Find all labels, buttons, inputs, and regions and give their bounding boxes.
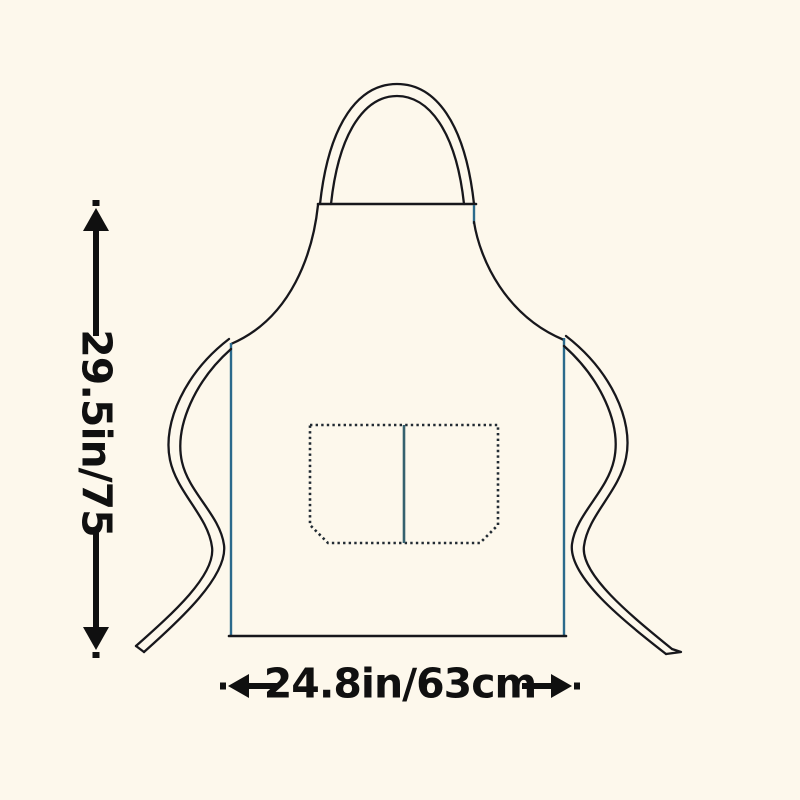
left-tie-inner-edge	[144, 349, 231, 652]
arrow-right-tip-nub	[574, 683, 580, 690]
right-tie-tip	[666, 649, 681, 654]
neck-strap-inner	[331, 96, 464, 204]
arrow-left-tip-nub	[220, 683, 226, 690]
arrow-down-tip-nub	[93, 652, 100, 658]
left-tie-outer-edge	[136, 339, 229, 646]
right-waist-tie	[564, 336, 681, 654]
apron-size-diagram: 29.5in/75 24.8in/63cm	[0, 0, 800, 800]
arrow-left-icon	[228, 674, 249, 698]
arrow-down-icon	[83, 627, 109, 650]
arrow-right-icon	[551, 674, 572, 698]
bib-right-curve	[474, 222, 564, 340]
arrow-up-icon	[83, 208, 109, 231]
vertical-dimension-label: 29.5in/75	[76, 329, 117, 536]
left-waist-tie	[136, 339, 231, 652]
left-tie-end-cap	[136, 646, 144, 652]
right-tie-outer-edge	[566, 336, 672, 649]
arrow-up-tip-nub	[93, 200, 100, 206]
horizontal-dimension-label: 24.8in/63cm	[264, 664, 536, 705]
bib-left-curve	[231, 205, 318, 344]
